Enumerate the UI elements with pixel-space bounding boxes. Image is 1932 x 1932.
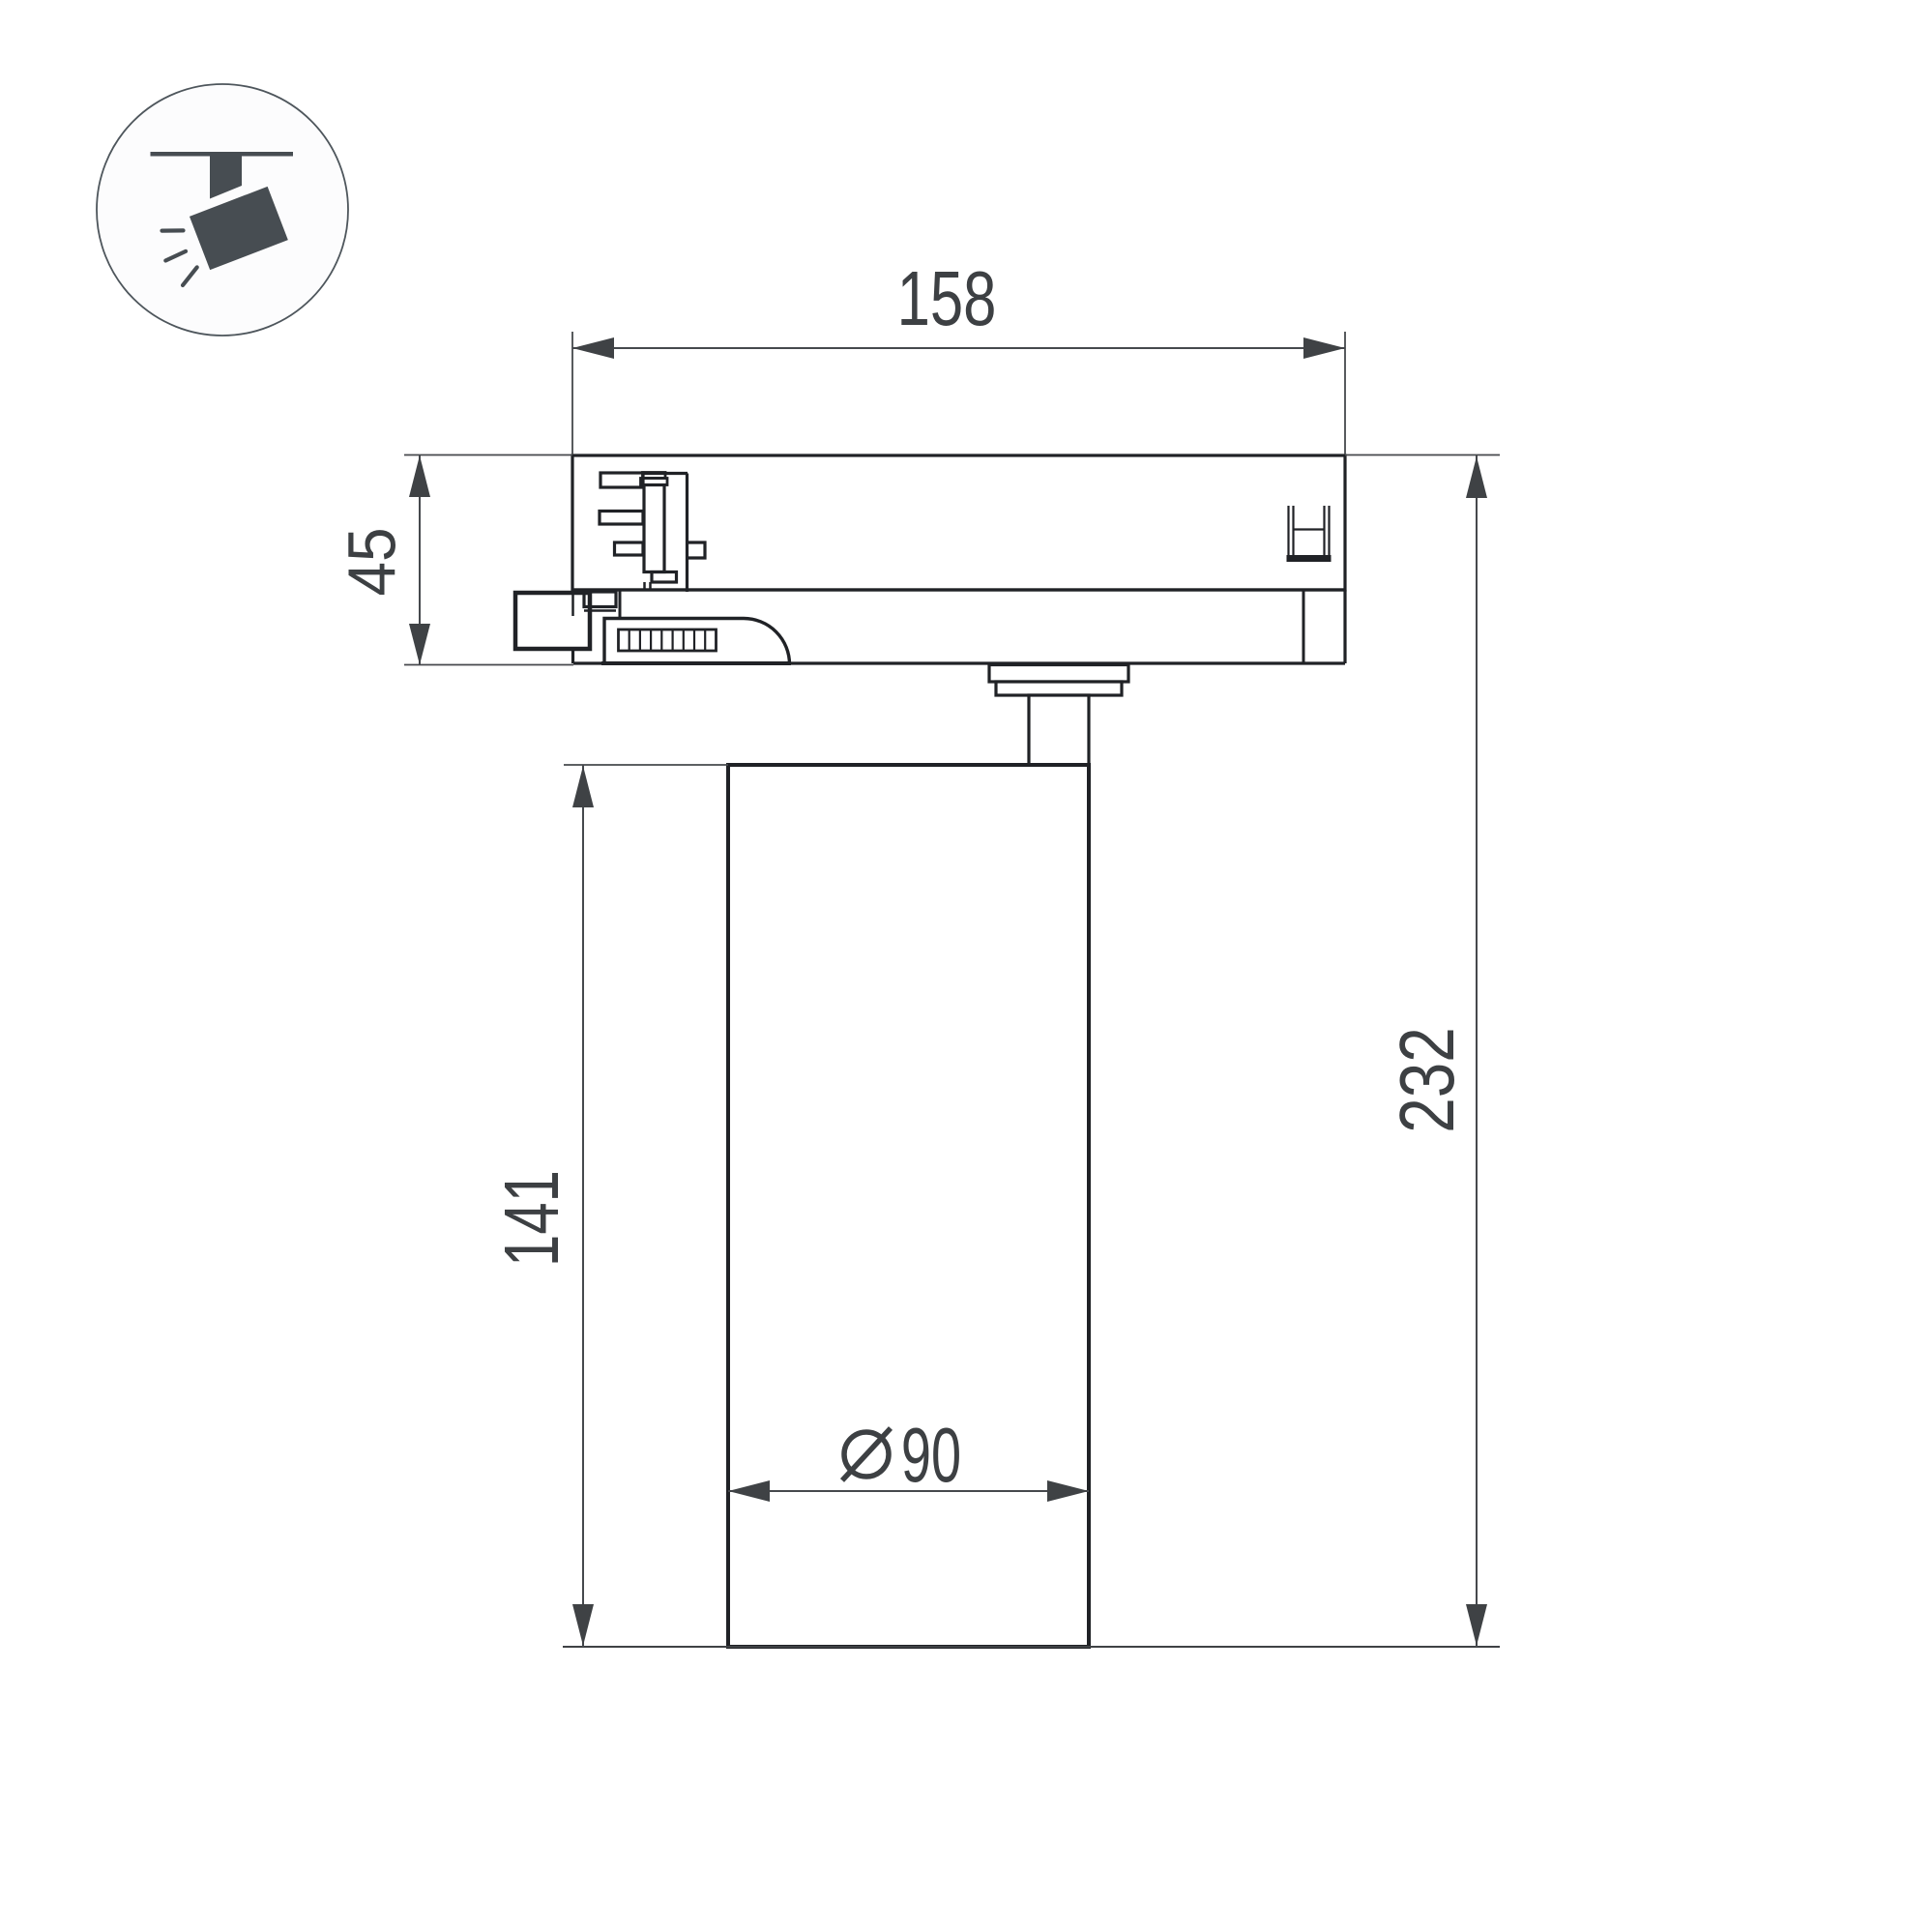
svg-text:141: 141: [487, 1170, 574, 1267]
svg-text:158: 158: [897, 254, 997, 341]
svg-text:45: 45: [335, 527, 410, 596]
svg-text:232: 232: [1383, 1027, 1470, 1133]
svg-text:90: 90: [901, 1411, 961, 1498]
